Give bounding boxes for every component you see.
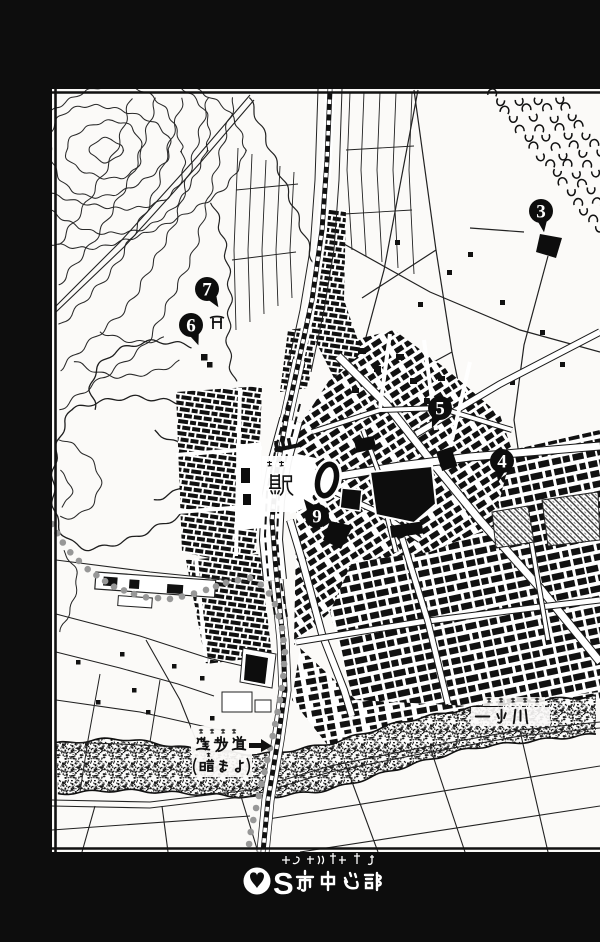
svg-text:7: 7: [202, 280, 212, 301]
svg-text:6: 6: [186, 316, 196, 337]
svg-text:3: 3: [536, 202, 546, 223]
svg-text:5: 5: [435, 399, 445, 420]
svg-text:9: 9: [312, 507, 322, 528]
svg-text:S: S: [273, 866, 294, 901]
svg-text:4: 4: [497, 452, 507, 473]
